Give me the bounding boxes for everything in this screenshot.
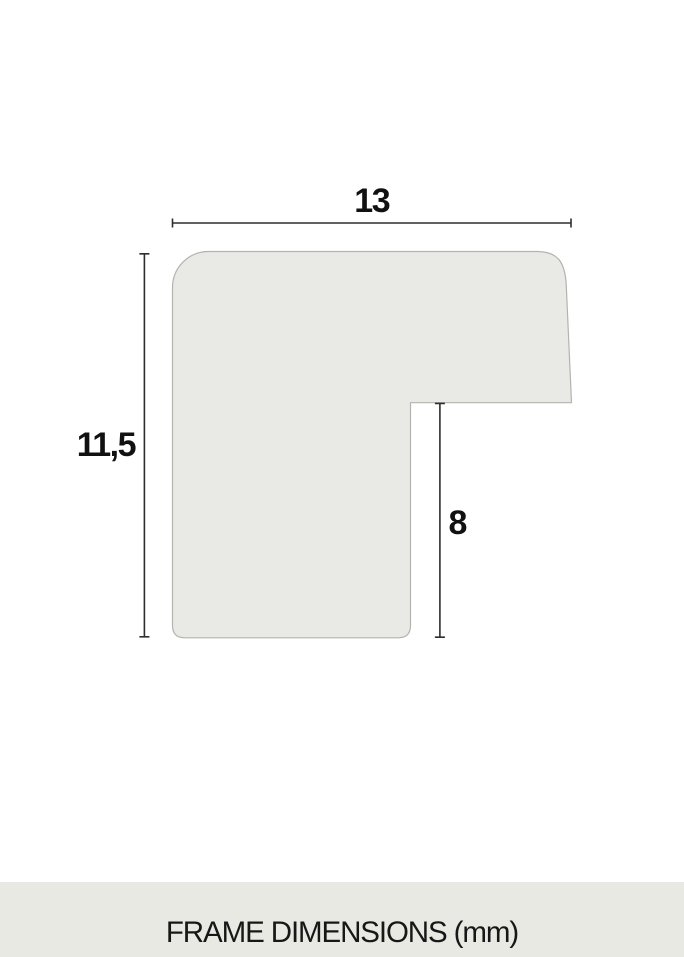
svg-text:FRAME DIMENSIONS (mm): FRAME DIMENSIONS (mm) (166, 916, 518, 949)
svg-text:8: 8 (449, 504, 468, 542)
svg-text:13: 13 (354, 182, 389, 220)
svg-text:11,5: 11,5 (77, 426, 136, 464)
